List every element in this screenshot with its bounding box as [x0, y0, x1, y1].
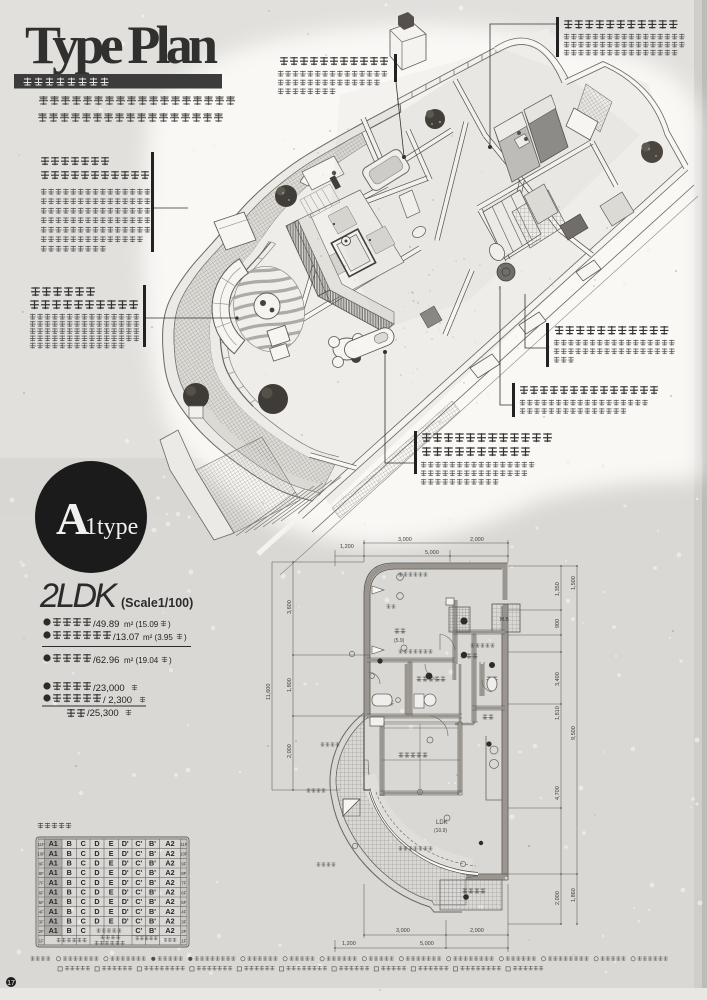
svg-text:900: 900: [555, 619, 561, 628]
svg-text:A1: A1: [49, 926, 58, 935]
svg-text:8F: 8F: [181, 871, 186, 876]
svg-text:D': D': [122, 888, 129, 897]
svg-text:9F: 9F: [39, 861, 44, 866]
svg-text:E: E: [109, 868, 114, 877]
svg-text:A1: A1: [49, 868, 58, 877]
svg-text:B': B': [149, 868, 156, 877]
svg-text:9,500: 9,500: [571, 726, 577, 740]
svg-text:4F: 4F: [181, 910, 186, 915]
svg-text:): ): [184, 633, 187, 642]
svg-text:8F: 8F: [39, 871, 44, 876]
svg-text:3,000: 3,000: [398, 537, 412, 543]
svg-text:B': B': [149, 917, 156, 926]
svg-text:D: D: [94, 839, 99, 848]
svg-text:6F: 6F: [39, 890, 44, 895]
svg-text:2,000: 2,000: [470, 928, 484, 934]
svg-text:D': D': [122, 878, 129, 887]
svg-text:5F: 5F: [39, 900, 44, 905]
svg-text:A2: A2: [165, 878, 174, 887]
svg-text:m² (19.04: m² (19.04: [124, 656, 159, 665]
svg-text:(10.9): (10.9): [434, 828, 447, 834]
svg-text:9F: 9F: [181, 861, 186, 866]
svg-text:D': D': [122, 868, 129, 877]
svg-text:C': C': [135, 859, 142, 868]
svg-text:2,000: 2,000: [287, 744, 293, 758]
svg-text:2,000: 2,000: [555, 891, 561, 905]
svg-text:C: C: [81, 926, 86, 935]
svg-text:C: C: [81, 917, 86, 926]
svg-text:10F: 10F: [180, 852, 188, 857]
svg-text:4F: 4F: [39, 910, 44, 915]
svg-text:D': D': [122, 917, 129, 926]
svg-text:A1: A1: [49, 907, 58, 916]
svg-text:B: B: [67, 926, 72, 935]
svg-text:A1: A1: [49, 897, 58, 906]
svg-text:2,000: 2,000: [470, 537, 484, 543]
svg-text:A2: A2: [165, 917, 174, 926]
svg-text:B: B: [67, 878, 72, 887]
svg-text:D: D: [94, 878, 99, 887]
svg-text:1,200: 1,200: [340, 544, 354, 550]
svg-text:C: C: [81, 907, 86, 916]
svg-text:E: E: [109, 888, 114, 897]
svg-text:C': C': [135, 888, 142, 897]
svg-text:1,500: 1,500: [571, 576, 577, 590]
svg-text:3F: 3F: [181, 919, 186, 924]
svg-text:B': B': [149, 849, 156, 858]
svg-text:1F: 1F: [181, 939, 186, 944]
svg-text:17: 17: [7, 980, 15, 987]
svg-text:3,600: 3,600: [287, 600, 293, 614]
svg-text:D: D: [94, 888, 99, 897]
svg-text:D': D': [122, 839, 129, 848]
svg-text:C': C': [135, 917, 142, 926]
svg-text:D': D': [122, 849, 129, 858]
svg-text:m² (3.95: m² (3.95: [143, 633, 173, 642]
svg-text:7F: 7F: [39, 881, 44, 886]
svg-text:D: D: [94, 907, 99, 916]
svg-text:11F: 11F: [38, 842, 46, 847]
svg-text:10F: 10F: [37, 852, 45, 857]
svg-text:B': B': [149, 878, 156, 887]
svg-text:B': B': [149, 907, 156, 916]
svg-text:C': C': [135, 849, 142, 858]
svg-text:3,000: 3,000: [396, 928, 410, 934]
svg-text:Type Plan: Type Plan: [25, 15, 218, 75]
svg-text:C: C: [81, 839, 86, 848]
svg-text:/ 2,300: / 2,300: [103, 695, 132, 706]
svg-text:3F: 3F: [39, 919, 44, 924]
svg-text:A2: A2: [165, 897, 174, 906]
svg-text:C: C: [81, 888, 86, 897]
svg-text:11,600: 11,600: [266, 684, 272, 700]
svg-text:/13.07: /13.07: [113, 632, 139, 643]
svg-text:1,810: 1,810: [555, 706, 561, 720]
svg-text:C: C: [81, 878, 86, 887]
svg-text:D: D: [94, 859, 99, 868]
svg-text:m² (15.09: m² (15.09: [124, 620, 159, 629]
svg-text:E: E: [109, 917, 114, 926]
svg-text:D: D: [94, 849, 99, 858]
svg-text:B': B': [149, 888, 156, 897]
svg-text:1,350: 1,350: [555, 582, 561, 596]
svg-text:/23,000: /23,000: [93, 683, 125, 694]
svg-text:A1: A1: [49, 917, 58, 926]
svg-text:B': B': [149, 859, 156, 868]
svg-text:2F: 2F: [39, 929, 44, 934]
svg-text:B: B: [67, 859, 72, 868]
svg-text:A2: A2: [165, 907, 174, 916]
svg-text:C: C: [81, 849, 86, 858]
svg-text:E: E: [109, 849, 114, 858]
svg-text:/62.96: /62.96: [93, 655, 119, 666]
svg-text:): ): [168, 620, 171, 629]
svg-text:(5.9): (5.9): [394, 638, 405, 644]
svg-text:A2: A2: [165, 926, 174, 935]
svg-text:A2: A2: [165, 839, 174, 848]
svg-text:A1: A1: [49, 878, 58, 887]
svg-text:/25,300: /25,300: [87, 708, 119, 719]
svg-text:D: D: [94, 868, 99, 877]
svg-text:C': C': [135, 839, 142, 848]
svg-text:B: B: [67, 897, 72, 906]
svg-text:B': B': [149, 897, 156, 906]
svg-text:C': C': [135, 926, 142, 935]
svg-text:A2: A2: [165, 868, 174, 877]
svg-text:D: D: [94, 897, 99, 906]
svg-text:C: C: [81, 897, 86, 906]
svg-text:A2: A2: [165, 859, 174, 868]
svg-text:5,000: 5,000: [420, 941, 434, 947]
svg-text:C': C': [135, 878, 142, 887]
svg-text:E: E: [109, 897, 114, 906]
svg-text:M.B: M.B: [500, 617, 510, 623]
svg-text:C': C': [135, 868, 142, 877]
svg-text:E: E: [109, 859, 114, 868]
svg-text:C: C: [81, 859, 86, 868]
svg-text:4,700: 4,700: [555, 786, 561, 800]
svg-text:E: E: [109, 878, 114, 887]
svg-text:B: B: [67, 888, 72, 897]
svg-text:A2: A2: [165, 888, 174, 897]
svg-text:/49.89: /49.89: [93, 619, 119, 630]
svg-text:1,860: 1,860: [571, 888, 577, 902]
svg-text:B: B: [67, 849, 72, 858]
svg-text:5,000: 5,000: [425, 550, 439, 556]
svg-text:E: E: [109, 839, 114, 848]
svg-text:A1: A1: [49, 888, 58, 897]
svg-text:6F: 6F: [181, 890, 186, 895]
svg-text:A1: A1: [49, 849, 58, 858]
svg-text:2F: 2F: [181, 929, 186, 934]
svg-text:A1: A1: [49, 859, 58, 868]
svg-text:1type: 1type: [85, 514, 138, 540]
svg-text:5F: 5F: [181, 900, 186, 905]
svg-text:A2: A2: [165, 849, 174, 858]
svg-text:D': D': [122, 907, 129, 916]
svg-text:D': D': [122, 897, 129, 906]
svg-text:C: C: [81, 868, 86, 877]
svg-text:1,800: 1,800: [287, 678, 293, 692]
svg-text:7F: 7F: [181, 881, 186, 886]
svg-text:E: E: [109, 907, 114, 916]
svg-text:B: B: [67, 917, 72, 926]
svg-text:C': C': [135, 907, 142, 916]
svg-text:D': D': [122, 859, 129, 868]
svg-text:D: D: [94, 917, 99, 926]
svg-text:11F: 11F: [180, 842, 188, 847]
svg-text:1F: 1F: [39, 939, 44, 944]
svg-text:): ): [169, 656, 172, 665]
svg-text:1,200: 1,200: [342, 941, 356, 947]
svg-text:(Scale1/100): (Scale1/100): [121, 596, 193, 610]
svg-text:C': C': [135, 897, 142, 906]
svg-text:B: B: [67, 868, 72, 877]
svg-text:A1: A1: [49, 839, 58, 848]
svg-text:B': B': [149, 839, 156, 848]
svg-text:B': B': [149, 926, 156, 935]
svg-text:B: B: [67, 907, 72, 916]
svg-text:3,400: 3,400: [555, 672, 561, 686]
svg-text:2LDK: 2LDK: [39, 577, 118, 615]
svg-text:B: B: [67, 839, 72, 848]
